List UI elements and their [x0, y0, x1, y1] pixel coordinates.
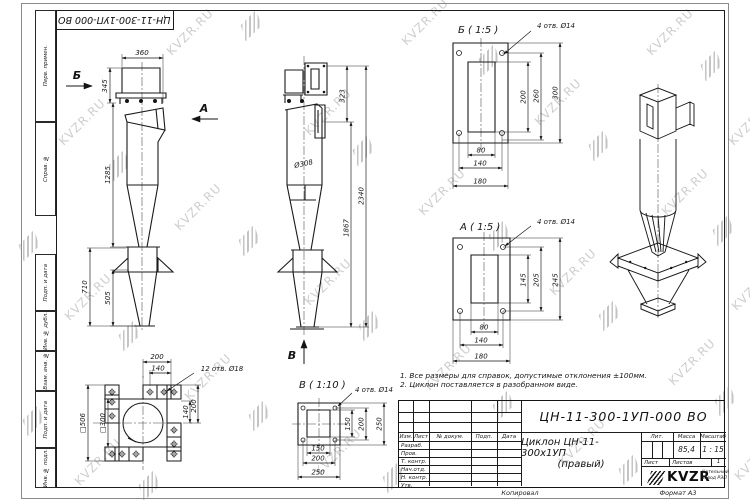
product-title: Циклон ЦН-11-300х1УП: [521, 437, 641, 459]
row-utv: Утв.: [401, 483, 413, 489]
margin-band-vzam-inv: Взам. инв. №: [35, 351, 56, 391]
margin-band-inv-dubl: Инв. № дубл.: [35, 311, 56, 351]
outer-border-bottom: [21, 498, 728, 499]
note-line-2: 2. Циклон поставляется в разобранном вид…: [400, 380, 650, 389]
grid-line: [399, 481, 521, 482]
outer-border-right: [728, 3, 729, 499]
mass-label: Масса: [673, 433, 700, 441]
doc-number: ЦН-11-300-1УП-000 ВО: [521, 401, 726, 432]
grid-line: [652, 441, 653, 458]
col-header-dokum: № докум.: [429, 433, 471, 441]
margin-label: Перв. примен.: [43, 45, 49, 86]
company-name-line2: завод РЭП: [702, 476, 727, 481]
margin-band-sprav-no: Справ. №: [35, 122, 56, 216]
title-block: Изм. Лист № докум. Подп. Дата Разраб. Пр…: [398, 400, 725, 488]
product-name: Циклон ЦН-11-300х1УП (правый): [521, 433, 641, 473]
row-nachotd: Нач.отд.: [401, 467, 426, 473]
sheets-value: 1: [711, 458, 726, 466]
margin-band-podp-data-2: Подп. и дата: [35, 391, 56, 448]
margin-label: Инв. № подл.: [43, 449, 49, 487]
top-doc-number-box: ЦН-11-300-1УП-000 ВО: [56, 10, 174, 30]
grid-line: [399, 422, 521, 423]
col-header-list: Лист: [413, 433, 429, 441]
margin-label: Взам. инв. №: [43, 352, 49, 390]
outer-border-top: [21, 3, 728, 4]
company-name-line1: Котельный: [702, 470, 729, 475]
margin-label: Инв. № дубл.: [43, 312, 49, 350]
grid-line: [399, 449, 521, 450]
kvzr-logo-icon: [647, 471, 666, 485]
row-razrab: Разраб.: [401, 443, 423, 449]
outer-border-left: [21, 3, 22, 499]
row-nkontr: Н. контр.: [401, 475, 427, 481]
notes: 1. Все размеры для справок, допустимые о…: [400, 371, 650, 390]
margin-band-perv-primen: Перв. примен.: [35, 10, 56, 122]
sheets-label: Листов: [672, 460, 693, 466]
col-header-data: Дата: [497, 433, 521, 441]
margin-band-podp-data-1: Подп. и дата: [35, 254, 56, 311]
mass-value: 85,4: [673, 441, 700, 458]
margin-band-inv-podl: Инв. № подл.: [35, 448, 56, 488]
grid-line: [669, 458, 670, 466]
product-subtitle: (правый): [557, 459, 604, 470]
row-prov: Пров.: [401, 451, 417, 457]
top-doc-number: ЦН-11-300-1УП-000 ВО: [58, 14, 171, 25]
grid-line: [641, 466, 726, 467]
footer-format: Формат А3: [638, 489, 718, 497]
lit-label: Лит.: [641, 433, 673, 441]
drawing-sheet: KVZR.RUKVZR.RUKVZR.RUKVZR.RUKVZR.RUKVZR.…: [0, 0, 750, 500]
margin-label: Справ. №: [43, 155, 49, 182]
col-header-podp: Подп.: [471, 433, 497, 441]
sheet-label: Лист: [644, 460, 658, 466]
grid-line: [429, 401, 430, 486]
scale-label: Масштаб: [700, 433, 726, 441]
margin-label: Подп. и дата: [43, 264, 49, 301]
grid-line: [662, 441, 663, 458]
grid-line: [497, 401, 498, 486]
scale-value: 1 : 15: [700, 441, 726, 458]
margin-label: Подп. и дата: [43, 401, 49, 438]
grid-line: [399, 412, 521, 413]
note-line-1: 1. Все размеры для справок, допустимые о…: [400, 371, 650, 380]
col-header-izm: Изм.: [399, 433, 413, 441]
row-tkontr: Т. контр.: [401, 459, 427, 465]
footer-copy: Копировал: [460, 489, 580, 497]
grid-line: [471, 401, 472, 486]
